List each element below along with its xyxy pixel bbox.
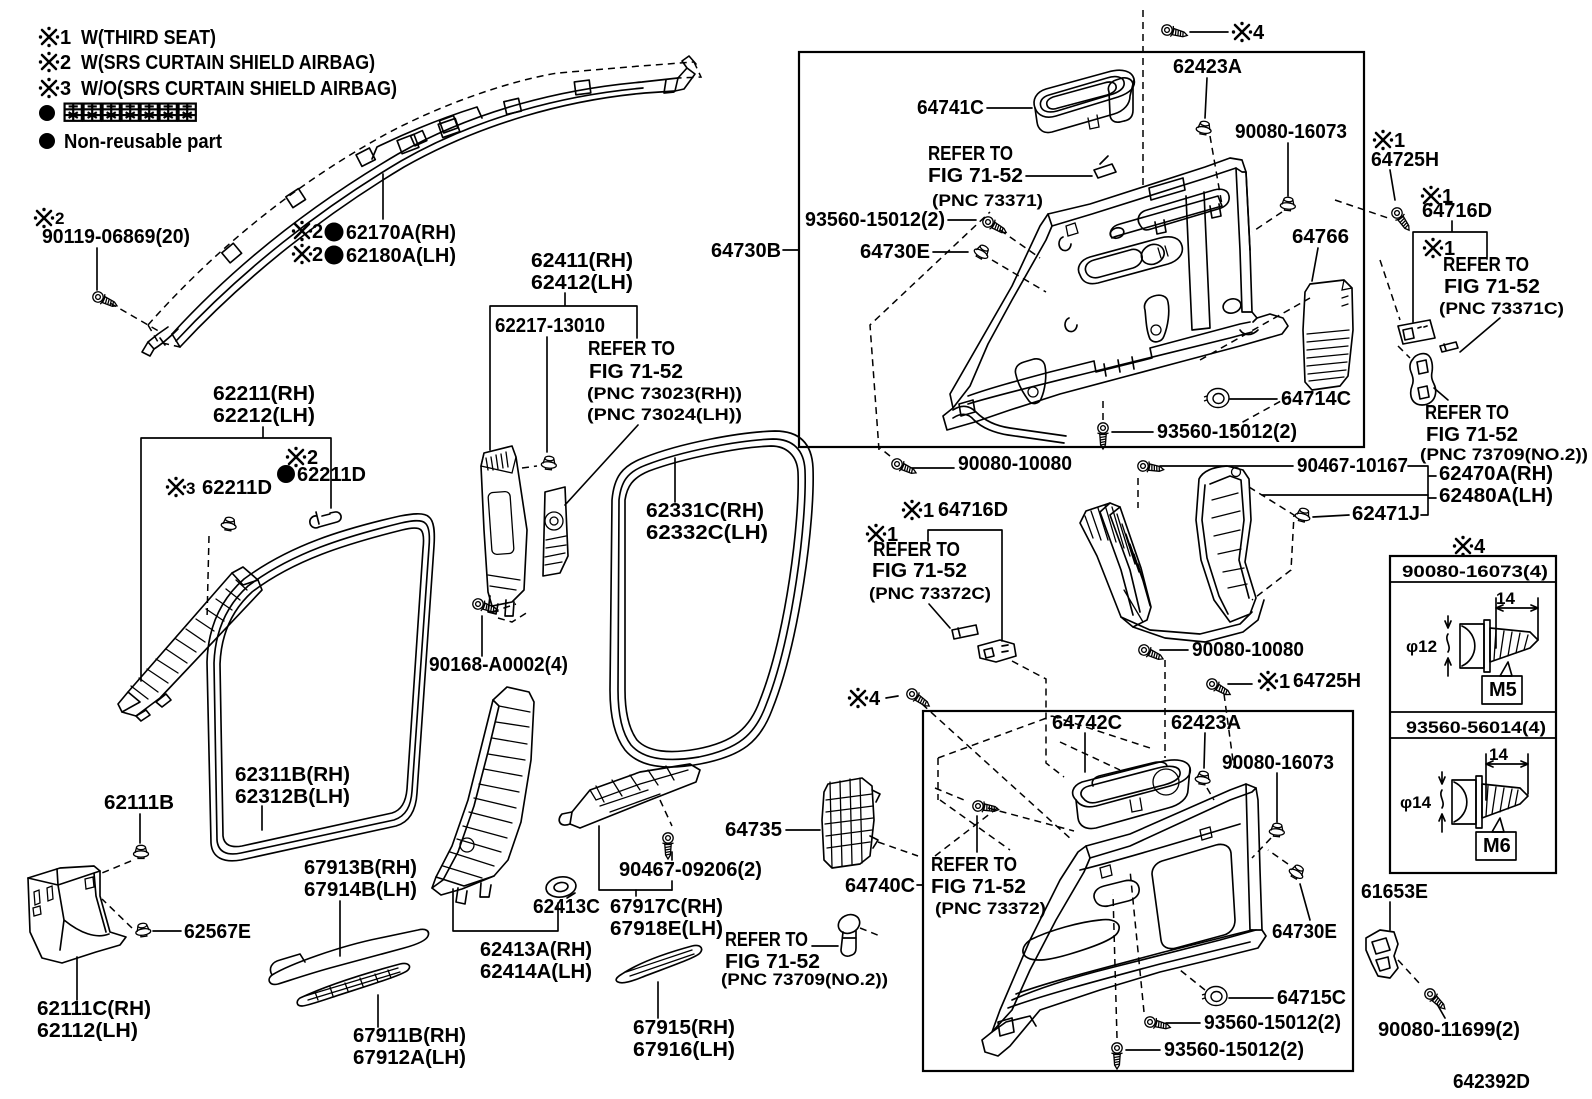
svg-text:90080-10080: 90080-10080 — [1192, 639, 1304, 661]
svg-text:2: 2 — [60, 52, 71, 74]
svg-text:62423A: 62423A — [1171, 712, 1241, 734]
svg-text:1: 1 — [1279, 671, 1290, 693]
svg-text:62180A(LH): 62180A(LH) — [346, 245, 456, 267]
svg-text:4: 4 — [869, 688, 881, 710]
svg-text:62170A(RH): 62170A(RH) — [346, 222, 456, 244]
svg-text:FIG 71-52: FIG 71-52 — [1444, 276, 1540, 298]
svg-text:90467-09206(2): 90467-09206(2) — [619, 859, 762, 881]
svg-text:67917C(RH): 67917C(RH) — [610, 896, 723, 918]
svg-text:64742C: 64742C — [1052, 712, 1122, 734]
svg-text:64716D: 64716D — [1422, 200, 1492, 222]
svg-text:W(SRS CURTAIN SHIELD AIRBAG): W(SRS CURTAIN SHIELD AIRBAG) — [81, 52, 375, 74]
svg-text:62413C: 62413C — [533, 896, 600, 918]
svg-text:62567E: 62567E — [184, 921, 251, 943]
svg-text:M6: M6 — [1483, 835, 1511, 857]
svg-text:64716D: 64716D — [938, 499, 1008, 521]
svg-text:90080-16073(4): 90080-16073(4) — [1402, 562, 1548, 581]
svg-text:REFER TO: REFER TO — [725, 929, 808, 951]
svg-text:93560-15012(2): 93560-15012(2) — [1164, 1039, 1304, 1061]
svg-text:1: 1 — [923, 500, 934, 522]
svg-text:93560-15012(2): 93560-15012(2) — [805, 209, 945, 231]
svg-text:REFER TO: REFER TO — [928, 143, 1013, 165]
svg-text:62211(RH): 62211(RH) — [213, 383, 315, 405]
svg-text:FIG 71-52: FIG 71-52 — [931, 876, 1026, 898]
svg-text:W(THIRD SEAT): W(THIRD SEAT) — [81, 27, 216, 49]
svg-text:62412(LH): 62412(LH) — [531, 272, 633, 294]
svg-text:62480A(LH): 62480A(LH) — [1439, 485, 1553, 507]
svg-text:62112(LH): 62112(LH) — [37, 1020, 138, 1042]
svg-text:90080-16073: 90080-16073 — [1222, 752, 1334, 774]
svg-text:64735: 64735 — [725, 819, 782, 841]
svg-text:REFER TO: REFER TO — [1425, 402, 1509, 424]
svg-text:90080-10080: 90080-10080 — [958, 453, 1072, 475]
svg-text:90168-A0002(4): 90168-A0002(4) — [429, 654, 568, 676]
svg-text:4: 4 — [1474, 536, 1486, 558]
svg-text:FIG 71-52: FIG 71-52 — [928, 165, 1023, 187]
svg-text:93560-15012(2): 93560-15012(2) — [1157, 421, 1297, 443]
svg-text:FIG 71-52: FIG 71-52 — [1426, 424, 1518, 446]
svg-text:67914B(LH): 67914B(LH) — [304, 879, 417, 901]
svg-text:62413A(RH): 62413A(RH) — [480, 939, 592, 961]
svg-text:64730B: 64730B — [711, 240, 781, 262]
svg-text:REFER TO: REFER TO — [873, 539, 960, 561]
svg-text:67916(LH): 67916(LH) — [633, 1039, 735, 1061]
svg-text:93560-15012(2): 93560-15012(2) — [1204, 1012, 1341, 1034]
svg-text:14: 14 — [1496, 589, 1516, 608]
svg-text:642392D: 642392D — [1453, 1071, 1530, 1093]
svg-text:62311B(RH): 62311B(RH) — [235, 764, 350, 786]
svg-text:REFER TO: REFER TO — [1443, 254, 1529, 276]
svg-text:M5: M5 — [1489, 679, 1517, 701]
svg-text:62212(LH): 62212(LH) — [213, 405, 315, 427]
svg-text:1: 1 — [60, 27, 71, 49]
svg-text:64730E: 64730E — [860, 241, 930, 263]
svg-text:4: 4 — [1253, 22, 1265, 44]
svg-text:64740C: 64740C — [845, 875, 915, 897]
svg-text:(PNC 73023(RH)): (PNC 73023(RH)) — [587, 384, 742, 403]
svg-text:(PNC 73371C): (PNC 73371C) — [1439, 299, 1564, 318]
svg-text:62111C(RH): 62111C(RH) — [37, 998, 151, 1020]
svg-text:62331C(RH): 62331C(RH) — [646, 500, 764, 522]
svg-text:90080-11699(2): 90080-11699(2) — [1378, 1019, 1520, 1041]
svg-text:(PNC 73372): (PNC 73372) — [935, 899, 1046, 918]
svg-text:62312B(LH): 62312B(LH) — [235, 786, 350, 808]
svg-text:62211D: 62211D — [297, 464, 366, 486]
svg-text:3: 3 — [186, 479, 195, 498]
svg-text:62332C(LH): 62332C(LH) — [646, 522, 768, 544]
svg-text:67911B(RH): 67911B(RH) — [353, 1025, 466, 1047]
svg-text:(PNC 73709(NO.2)): (PNC 73709(NO.2)) — [1420, 445, 1588, 464]
svg-text:FIG 71-52: FIG 71-52 — [589, 361, 683, 383]
svg-text:62423A: 62423A — [1173, 56, 1242, 78]
svg-text:64730E: 64730E — [1272, 921, 1337, 943]
svg-text:φ12: φ12 — [1406, 637, 1437, 656]
svg-text:62411(RH): 62411(RH) — [531, 250, 633, 272]
svg-text:W/O(SRS CURTAIN SHIELD AIRBAG): W/O(SRS CURTAIN SHIELD AIRBAG) — [81, 78, 397, 100]
svg-text:Non-reusable part: Non-reusable part — [64, 131, 222, 153]
svg-text:φ14: φ14 — [1400, 793, 1432, 812]
svg-text:64725H: 64725H — [1293, 670, 1361, 692]
svg-text:62211D: 62211D — [202, 477, 272, 499]
svg-text:90119-06869(20): 90119-06869(20) — [42, 226, 190, 248]
svg-text:2: 2 — [312, 244, 323, 266]
svg-text:90467-10167: 90467-10167 — [1297, 455, 1408, 477]
svg-text:3: 3 — [60, 78, 71, 100]
svg-text:67918E(LH): 67918E(LH) — [610, 918, 723, 940]
svg-text:67915(RH): 67915(RH) — [633, 1017, 735, 1039]
svg-text:64741C: 64741C — [917, 97, 984, 119]
svg-text:FIG 71-52: FIG 71-52 — [872, 560, 967, 582]
svg-text:64725H: 64725H — [1371, 149, 1439, 171]
svg-text:67913B(RH): 67913B(RH) — [304, 857, 417, 879]
svg-text:64714C: 64714C — [1281, 388, 1351, 410]
svg-text:64715C: 64715C — [1277, 987, 1346, 1009]
svg-text:(PNC 73709(NO.2)): (PNC 73709(NO.2)) — [721, 970, 888, 989]
svg-text:90080-16073: 90080-16073 — [1235, 121, 1347, 143]
svg-text:61653E: 61653E — [1361, 881, 1428, 903]
svg-text:62470A(RH): 62470A(RH) — [1439, 463, 1553, 485]
svg-text:(PNC 73372C): (PNC 73372C) — [869, 584, 991, 603]
svg-text:(PNC 73024(LH)): (PNC 73024(LH)) — [587, 405, 742, 424]
svg-text:62111B: 62111B — [104, 792, 174, 814]
svg-text:62414A(LH): 62414A(LH) — [480, 961, 592, 983]
svg-text:93560-56014(4): 93560-56014(4) — [1406, 718, 1546, 737]
svg-text:REFER TO: REFER TO — [931, 854, 1017, 876]
svg-text:64766: 64766 — [1292, 226, 1349, 248]
svg-text:REFER TO: REFER TO — [588, 338, 675, 360]
svg-text:(PNC 73371): (PNC 73371) — [932, 191, 1043, 210]
svg-text:62471J: 62471J — [1352, 503, 1420, 525]
svg-text:67912A(LH): 67912A(LH) — [353, 1047, 466, 1069]
svg-text:62217-13010: 62217-13010 — [495, 315, 605, 337]
